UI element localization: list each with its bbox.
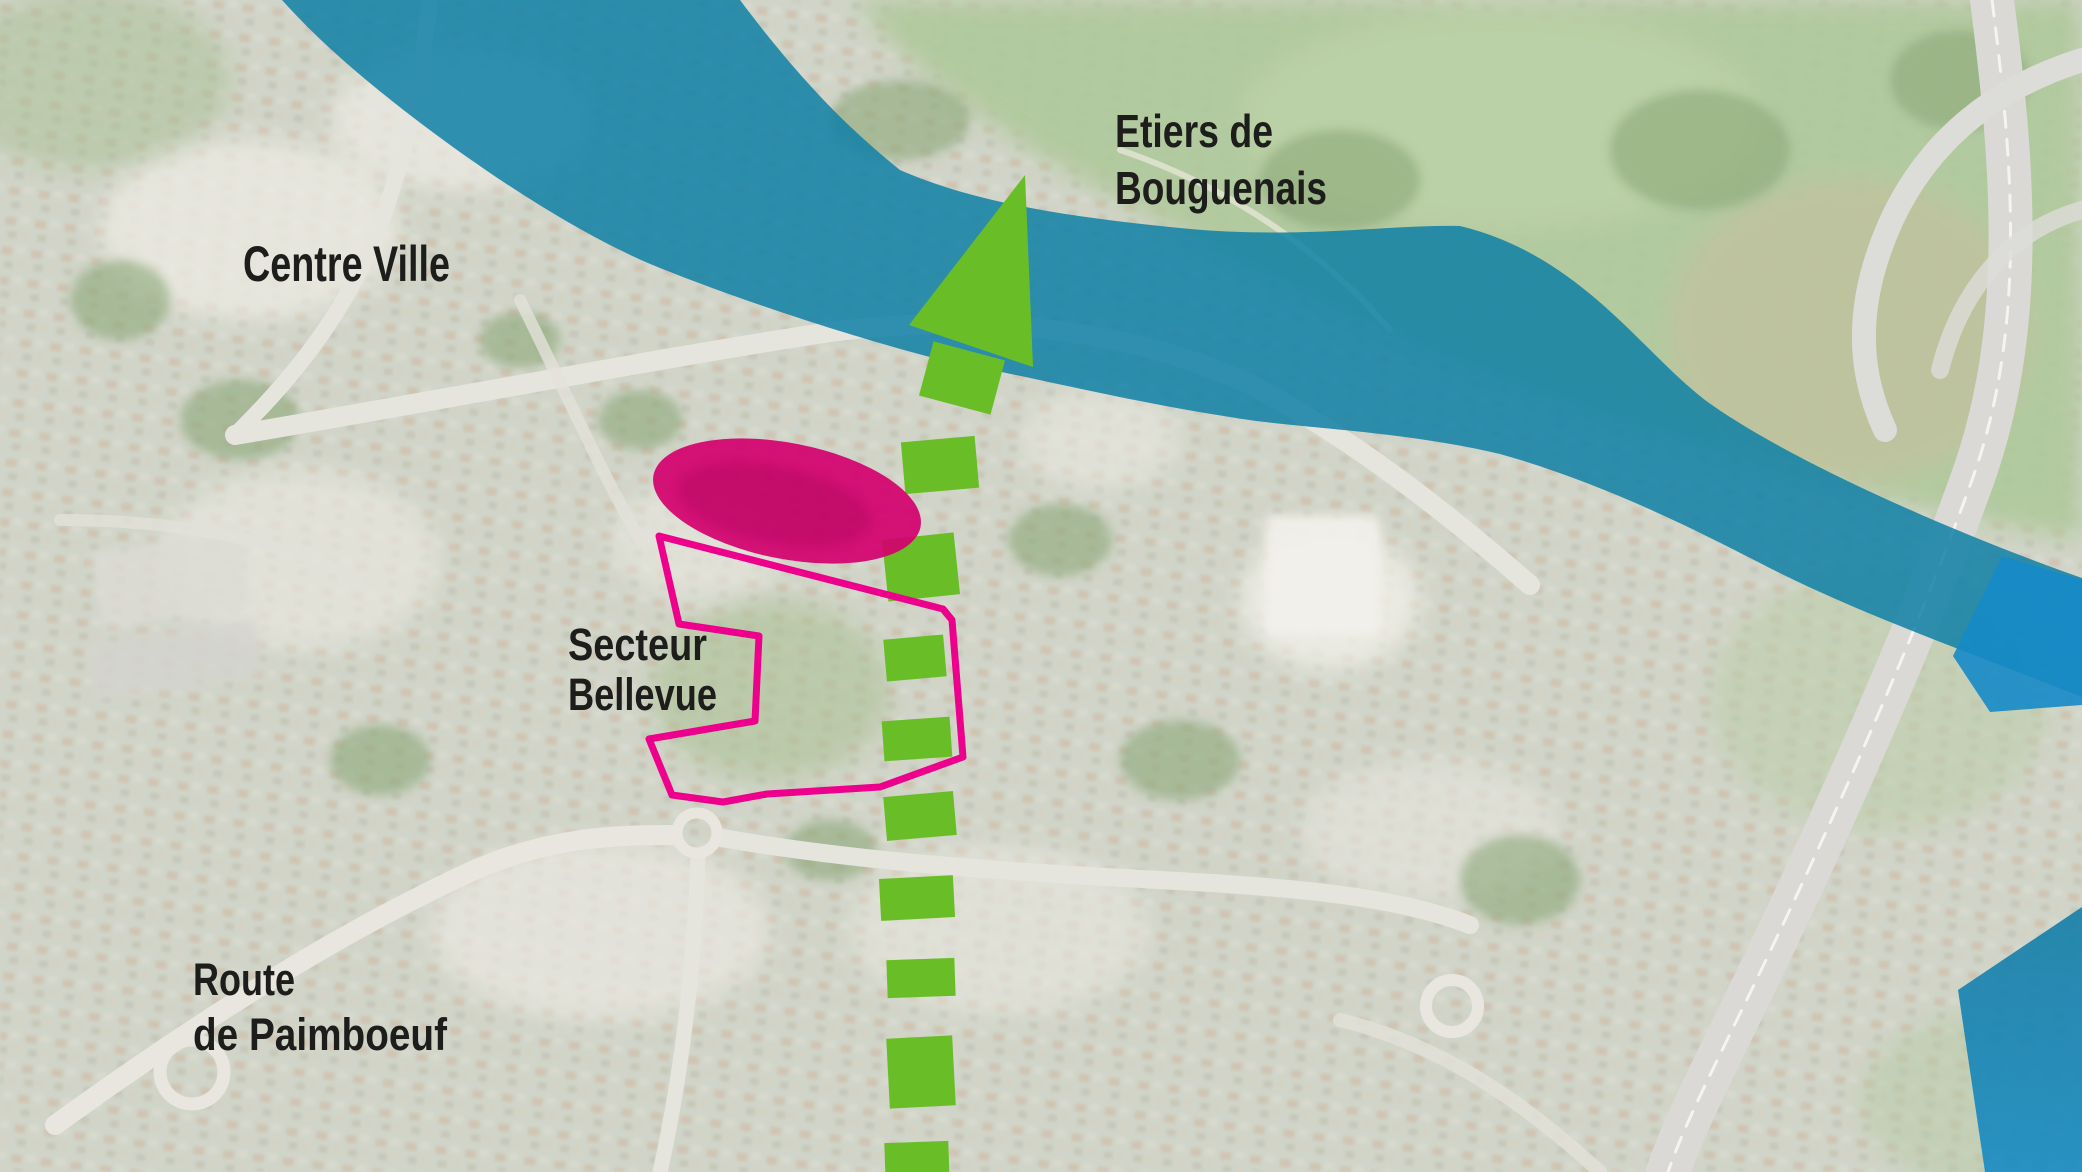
aerial-photo-background bbox=[0, 0, 2082, 1172]
label-secteur-line1: Secteur bbox=[568, 619, 707, 670]
aerial-planning-map: Centre Ville Etiers de Bouguenais Secteu… bbox=[0, 0, 2082, 1172]
green-dash bbox=[884, 1141, 949, 1172]
label-route-line1: Route bbox=[193, 954, 295, 1005]
label-centre-ville: Centre Ville bbox=[243, 236, 450, 292]
green-dash bbox=[879, 875, 955, 921]
green-dash bbox=[886, 1035, 956, 1108]
label-etiers-line1: Etiers de bbox=[1115, 105, 1273, 157]
green-dash bbox=[883, 791, 957, 841]
label-etiers-line2: Bouguenais bbox=[1115, 162, 1327, 214]
label-secteur-line2: Bellevue bbox=[568, 669, 717, 720]
haze-wash bbox=[0, 0, 2082, 1172]
green-dash bbox=[901, 436, 979, 494]
label-route-line2: de Paimboeuf bbox=[193, 1009, 448, 1060]
green-dash bbox=[883, 634, 946, 681]
green-dash bbox=[886, 958, 955, 998]
green-dash bbox=[882, 717, 953, 762]
